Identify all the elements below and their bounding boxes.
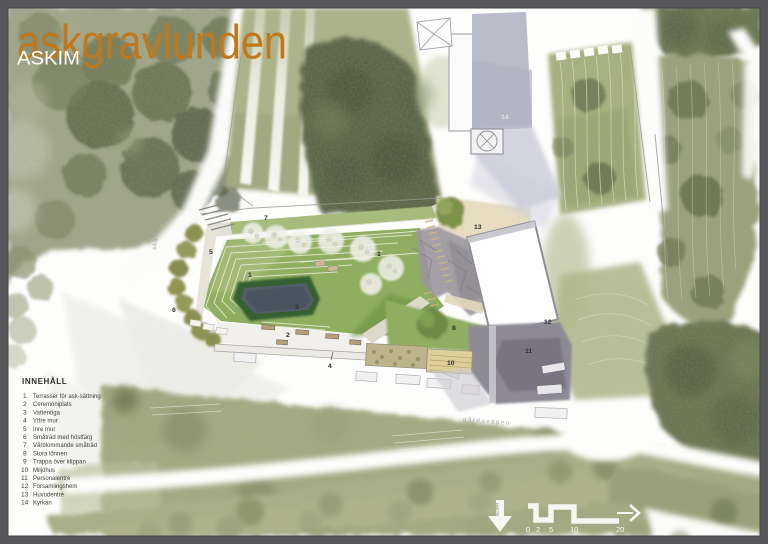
svg-text:4: 4 (23, 418, 27, 425)
svg-text:5: 5 (549, 525, 553, 534)
svg-text:Ceremoniplats: Ceremoniplats (33, 402, 72, 408)
svg-text:Vattenöga: Vattenöga (33, 410, 61, 416)
svg-text:Församlingshem: Församlingshem (33, 484, 77, 490)
svg-text:Inre mur: Inre mur (33, 427, 55, 433)
svg-text:12: 12 (544, 319, 552, 326)
svg-text:14: 14 (21, 500, 29, 507)
svg-text:20: 20 (616, 525, 624, 534)
svg-text:2: 2 (23, 401, 27, 408)
svg-text:2: 2 (286, 332, 290, 339)
svg-text:Vårblommande småträd: Vårblommande småträd (33, 442, 97, 449)
svg-text:1: 1 (377, 251, 381, 258)
svg-text:14: 14 (501, 114, 509, 121)
svg-text:INNEHÅLL: INNEHÅLL (22, 377, 67, 386)
svg-text:9: 9 (23, 459, 27, 466)
svg-text:10: 10 (570, 525, 578, 534)
svg-text:12: 12 (21, 483, 29, 490)
svg-text:8: 8 (23, 450, 27, 457)
svg-text:Terrasser för ask-sättning: Terrasser för ask-sättning (33, 394, 101, 400)
svg-text:Personalentré: Personalentré (33, 476, 71, 482)
svg-text:Yttre mur: Yttre mur (33, 419, 58, 425)
svg-text:1: 1 (248, 272, 252, 279)
svg-text:2: 2 (536, 525, 540, 534)
svg-text:13: 13 (21, 491, 29, 498)
svg-text:NORR: NORR (495, 502, 500, 516)
svg-text:Trappa över klippan: Trappa över klippan (33, 460, 86, 466)
svg-text:7: 7 (264, 215, 268, 222)
svg-text:6: 6 (172, 307, 176, 314)
svg-text:7: 7 (23, 442, 27, 449)
svg-text:ASKIM: ASKIM (17, 49, 80, 70)
svg-text:3: 3 (23, 409, 27, 416)
svg-text:Småträd med höstfärg: Småträd med höstfärg (33, 434, 92, 441)
svg-text:Miljöhus: Miljöhus (33, 468, 55, 474)
svg-text:4: 4 (328, 363, 332, 370)
svg-text:10: 10 (447, 360, 455, 367)
svg-text:10: 10 (21, 467, 29, 474)
svg-text:Stora lönnen: Stora lönnen (33, 451, 67, 457)
svg-text:13: 13 (474, 224, 482, 231)
svg-text:0: 0 (526, 525, 530, 534)
svg-text:5: 5 (209, 249, 213, 256)
svg-text:11: 11 (21, 475, 28, 482)
svg-text:11: 11 (525, 348, 532, 355)
svg-text:8: 8 (452, 325, 456, 332)
svg-text:6: 6 (23, 434, 27, 441)
svg-text:Huvudentré: Huvudentré (33, 492, 65, 498)
svg-text:1: 1 (23, 393, 27, 400)
svg-text:3: 3 (295, 304, 299, 311)
svg-text:5: 5 (23, 426, 27, 433)
svg-text:Kyrkan: Kyrkan (33, 501, 52, 507)
